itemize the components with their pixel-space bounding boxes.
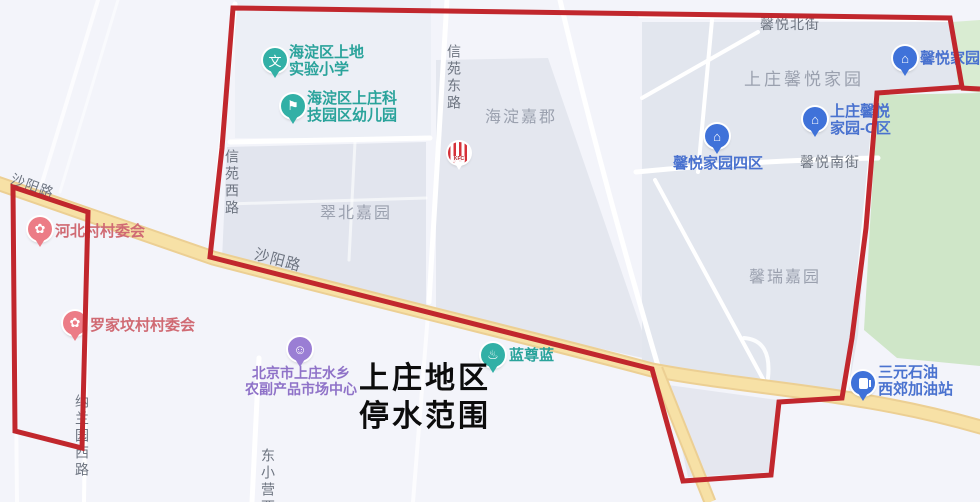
kfc-poi-icon[interactable]: KFC	[448, 142, 470, 164]
outage-title: 上庄地区 停水范围	[350, 360, 500, 436]
road-label-xinyuan-east: 信苑东路	[444, 44, 464, 112]
xinyue-four-poi-icon[interactable]: ⌂	[705, 124, 729, 148]
road-label-dongxiaoying-west: 东小营西路	[258, 448, 278, 502]
kindergarten-poi-label: 海淀区上庄科技园区幼儿园	[307, 90, 397, 124]
xinyue-c-poi-icon[interactable]: ⌂	[803, 107, 827, 131]
hebei-village-poi-icon[interactable]: ✿	[28, 217, 52, 241]
road-label-xinyuan-west: 信苑西路	[222, 149, 242, 217]
xinyue-one-poi-icon[interactable]: ⌂	[893, 46, 917, 70]
xinyue-one-poi-label: 馨悦家园一区	[920, 50, 980, 67]
gas-station-poi-label: 三元石油西郊加油站	[878, 364, 953, 398]
road-label-nalanyuan-west: 纳兰园西路	[72, 394, 92, 479]
kindergarten-poi-icon[interactable]: ⚑	[281, 94, 305, 118]
kfc-label: KFC	[453, 156, 465, 162]
kindergarten-glyph: ⚑	[287, 98, 299, 114]
shopping-bag-icon: ☺	[293, 342, 306, 357]
school-poi-icon[interactable]: 文	[263, 48, 287, 72]
school-poi-label: 海淀区上地实验小学	[289, 44, 364, 78]
lanzunlan-poi-label: 蓝尊蓝	[509, 347, 554, 364]
area-label-haidian-jiajun: 海淀嘉郡	[485, 103, 557, 127]
building-icon: ⌂	[901, 51, 909, 66]
area-label-shangzhuang-xinyue: 上庄馨悦家园	[744, 65, 864, 90]
luojiafen-village-poi-icon[interactable]: ✿	[63, 311, 87, 335]
building-icon: ⌂	[811, 112, 819, 127]
market-poi-icon[interactable]: ☺	[288, 337, 312, 361]
road-label-xinyue-north: 馨悦北街	[760, 14, 820, 34]
area-label-cuibei-jiayuan: 翠北嘉园	[320, 199, 392, 223]
luojiafen-village-poi-label: 罗家坟村村委会	[90, 317, 195, 334]
hebei-village-poi-label: 河北村村委会	[55, 223, 145, 240]
building-icon: ⌂	[713, 129, 721, 144]
road-label-xinyue-south: 馨悦南街	[800, 152, 860, 172]
flower-icon: ✿	[35, 221, 46, 237]
flower-icon: ✿	[70, 315, 81, 331]
school-glyph: 文	[268, 51, 281, 70]
outage-title-line1: 上庄地区	[350, 360, 500, 398]
gas-station-poi-icon[interactable]	[851, 371, 875, 395]
xinyue-c-poi-label: 上庄馨悦家园-C区	[830, 103, 891, 137]
map-canvas[interactable]: 海淀嘉郡 翠北嘉园 上庄馨悦家园 馨瑞嘉园 沙阳路 沙阳路 馨悦北街 馨悦南街 …	[0, 0, 980, 502]
area-label-xinrui-jiayuan: 馨瑞嘉园	[749, 263, 821, 287]
outage-title-line2: 停水范围	[350, 398, 500, 436]
fuel-pump-icon	[859, 378, 868, 389]
